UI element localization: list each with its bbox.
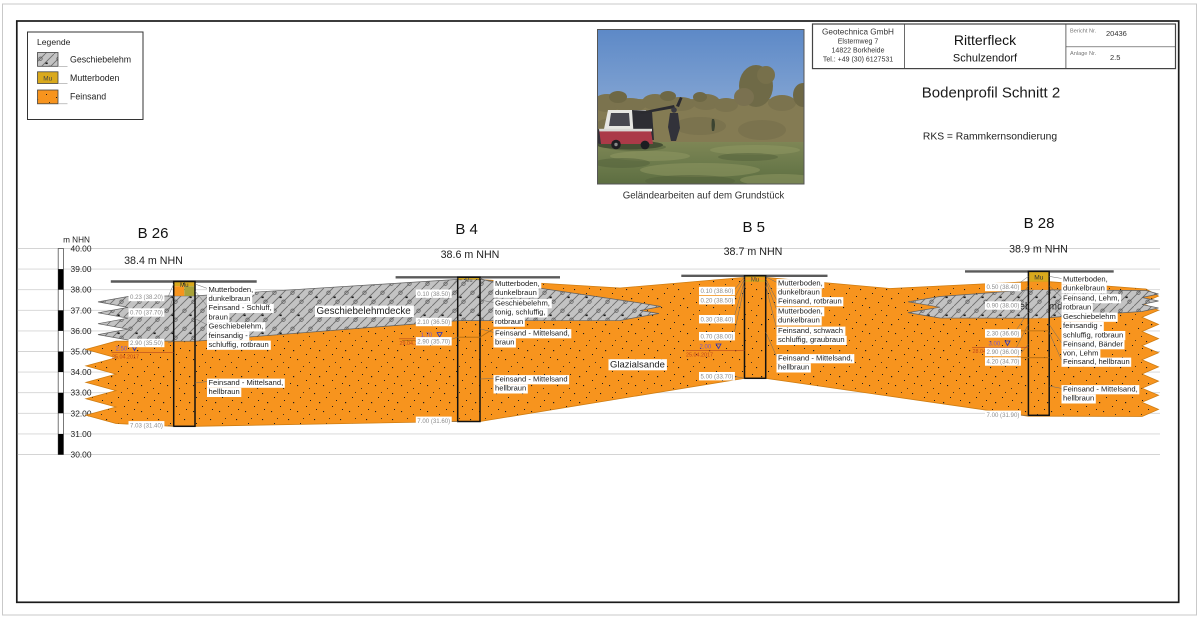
svg-text:schluffig, rotbraun: schluffig, rotbraun xyxy=(209,340,269,349)
svg-text:0.23 (38.20): 0.23 (38.20) xyxy=(130,294,163,301)
svg-text:rotbraun: rotbraun xyxy=(495,317,523,326)
svg-text:Bericht Nr.: Bericht Nr. xyxy=(1070,29,1097,35)
svg-text:2.90 (36.00): 2.90 (36.00) xyxy=(987,349,1020,356)
svg-text:7.00 (31.60): 7.00 (31.60) xyxy=(417,418,450,425)
svg-text:Mu: Mu xyxy=(180,282,189,289)
svg-text:34.00: 34.00 xyxy=(71,367,92,377)
svg-text:schluffig, graubraun: schluffig, graubraun xyxy=(778,335,845,344)
svg-text:2.90 (35.70): 2.90 (35.70) xyxy=(417,339,450,346)
svg-text:0.10 (38.60): 0.10 (38.60) xyxy=(701,288,734,295)
svg-text:5.00 (33.70): 5.00 (33.70) xyxy=(701,373,734,380)
svg-text:20436: 20436 xyxy=(1106,29,1127,38)
svg-text:3.00: 3.00 xyxy=(989,342,1001,348)
svg-text:Mutterboden,: Mutterboden, xyxy=(1063,275,1108,284)
svg-text:31.00: 31.00 xyxy=(71,429,92,439)
svg-text:36.00: 36.00 xyxy=(71,326,92,336)
svg-text:40.00: 40.00 xyxy=(71,244,92,254)
svg-text:hellbraun: hellbraun xyxy=(778,363,809,372)
svg-text:2.10 (36.50): 2.10 (36.50) xyxy=(417,319,450,326)
svg-text:25.04.2017: 25.04.2017 xyxy=(112,355,139,361)
svg-text:dunkelbraun: dunkelbraun xyxy=(778,316,820,325)
svg-text:Feinsand - Mittelsand,: Feinsand - Mittelsand, xyxy=(778,354,853,363)
svg-text:dunkelbraun: dunkelbraun xyxy=(209,294,251,303)
svg-text:0.70 (38.00): 0.70 (38.00) xyxy=(701,333,734,340)
svg-text:4.20 (34.70): 4.20 (34.70) xyxy=(987,359,1020,366)
svg-text:Feinsand, rotbraun: Feinsand, rotbraun xyxy=(778,297,842,306)
svg-text:Bodenprofil Schnitt 2: Bodenprofil Schnitt 2 xyxy=(922,85,1060,102)
svg-text:Anlage Nr.: Anlage Nr. xyxy=(1070,51,1097,57)
svg-text:38.4 m NHN: 38.4 m NHN xyxy=(124,255,183,267)
svg-text:0.20 (38.50): 0.20 (38.50) xyxy=(701,297,734,304)
svg-text:schluffig, rotbraun: schluffig, rotbraun xyxy=(1063,330,1123,339)
svg-text:braun: braun xyxy=(209,312,228,321)
svg-text:B 4: B 4 xyxy=(455,221,478,238)
svg-text:RKS = Rammkernsondierung: RKS = Rammkernsondierung xyxy=(923,132,1057,143)
svg-text:38.6 m NHN: 38.6 m NHN xyxy=(441,249,500,261)
svg-text:hellbraun: hellbraun xyxy=(495,384,526,393)
svg-text:B 5: B 5 xyxy=(742,219,765,236)
svg-text:2.5: 2.5 xyxy=(1110,53,1120,62)
svg-text:Ritterfleck: Ritterfleck xyxy=(954,32,1017,48)
svg-text:Feinsand, Bänder: Feinsand, Bänder xyxy=(1063,340,1123,349)
svg-text:14822 Borkheide: 14822 Borkheide xyxy=(832,48,885,55)
svg-text:Feinsand - Mittelsand,: Feinsand - Mittelsand, xyxy=(209,378,284,387)
svg-text:39.00: 39.00 xyxy=(71,264,92,274)
svg-text:38.7 m NHN: 38.7 m NHN xyxy=(724,246,783,258)
svg-text:Elsternweg 7: Elsternweg 7 xyxy=(838,39,879,46)
svg-text:2.50: 2.50 xyxy=(116,347,128,353)
svg-text:hellbraun: hellbraun xyxy=(209,387,240,396)
svg-text:0.30 (38.40): 0.30 (38.40) xyxy=(701,316,734,323)
svg-text:Feinsand - Mittelsand,: Feinsand - Mittelsand, xyxy=(1063,385,1138,394)
svg-text:Mu: Mu xyxy=(1034,274,1043,281)
svg-text:25.04.2017: 25.04.2017 xyxy=(686,353,713,359)
svg-text:Glazialsande: Glazialsande xyxy=(610,360,665,371)
svg-text:tonig, schluffig,: tonig, schluffig, xyxy=(495,308,546,317)
svg-text:Feinsand - Mittelsand,: Feinsand - Mittelsand, xyxy=(495,329,570,338)
svg-text:Geschiebelehm: Geschiebelehm xyxy=(70,55,131,65)
svg-text:Geotechnica GmbH: Geotechnica GmbH xyxy=(822,28,894,37)
svg-text:Geländearbeiten auf dem Grunds: Geländearbeiten auf dem Grundstück xyxy=(623,191,785,202)
svg-text:Geschiebelehmdecke: Geschiebelehmdecke xyxy=(317,306,412,317)
svg-text:dunkelbraun: dunkelbraun xyxy=(1063,284,1105,293)
svg-text:Schulzendorf: Schulzendorf xyxy=(953,53,1018,65)
svg-text:dunkelbraun: dunkelbraun xyxy=(778,288,820,297)
svg-text:0.90 (38.00): 0.90 (38.00) xyxy=(987,303,1020,310)
svg-text:Geschiebelehm: Geschiebelehm xyxy=(1063,312,1116,321)
svg-text:Geschiebelehm,: Geschiebelehm, xyxy=(495,299,550,308)
svg-text:Mu: Mu xyxy=(43,76,52,83)
svg-text:0.10 (38.50): 0.10 (38.50) xyxy=(417,291,450,298)
svg-text:0.50 (38.40): 0.50 (38.40) xyxy=(987,284,1020,291)
svg-text:Mu: Mu xyxy=(751,277,759,283)
svg-text:rotbraun: rotbraun xyxy=(1063,303,1091,312)
svg-text:38.9 m NHN: 38.9 m NHN xyxy=(1009,244,1068,256)
svg-text:hellbraun: hellbraun xyxy=(1063,394,1094,403)
svg-text:Feinsand, hellbraun: Feinsand, hellbraun xyxy=(1063,357,1130,366)
svg-text:37.00: 37.00 xyxy=(71,305,92,315)
svg-text:Tel.: +49 (30) 6127531: Tel.: +49 (30) 6127531 xyxy=(823,57,893,64)
svg-text:B 28: B 28 xyxy=(1024,215,1055,232)
svg-text:30.00: 30.00 xyxy=(71,450,92,460)
svg-text:33.00: 33.00 xyxy=(71,388,92,398)
svg-text:2.90 (35.50): 2.90 (35.50) xyxy=(130,340,163,347)
svg-text:Feinsand - Mittelsand: Feinsand - Mittelsand xyxy=(495,375,568,384)
svg-text:feinsandig -: feinsandig - xyxy=(209,331,249,340)
svg-text:Legende: Legende xyxy=(37,37,71,47)
svg-text:2.30 (36.60): 2.30 (36.60) xyxy=(987,331,1020,338)
svg-text:Feinsand: Feinsand xyxy=(70,92,106,102)
svg-text:Mutterboden,: Mutterboden, xyxy=(209,285,254,294)
svg-text:Mutterboden,: Mutterboden, xyxy=(778,279,823,288)
svg-text:35.00: 35.00 xyxy=(71,347,92,357)
svg-text:Mutterboden,: Mutterboden, xyxy=(778,307,823,316)
svg-text:32.00: 32.00 xyxy=(71,408,92,418)
svg-text:dunkelbraun: dunkelbraun xyxy=(495,288,537,297)
svg-text:38.00: 38.00 xyxy=(71,285,92,295)
svg-text:B 26: B 26 xyxy=(138,225,169,242)
svg-text:Mu: Mu xyxy=(465,278,473,284)
svg-text:Feinsand - Schluff,: Feinsand - Schluff, xyxy=(209,303,272,312)
svg-text:2.00: 2.00 xyxy=(700,345,712,351)
svg-text:Feinsand, schwach: Feinsand, schwach xyxy=(778,326,843,335)
svg-text:feinsandig -: feinsandig - xyxy=(1063,321,1103,330)
svg-text:Geschiebelehm,: Geschiebelehm, xyxy=(209,322,264,331)
svg-text:Feinsand, Lehm,: Feinsand, Lehm, xyxy=(1063,294,1120,303)
svg-text:Mutterboden,: Mutterboden, xyxy=(495,279,540,288)
svg-text:Mutterboden: Mutterboden xyxy=(70,73,119,83)
svg-text:7.03 (31.40): 7.03 (31.40) xyxy=(130,423,163,430)
svg-text:braun: braun xyxy=(495,338,514,347)
svg-text:7.00 (31.90): 7.00 (31.90) xyxy=(987,412,1020,419)
svg-text:0.70 (37.70): 0.70 (37.70) xyxy=(130,310,163,317)
